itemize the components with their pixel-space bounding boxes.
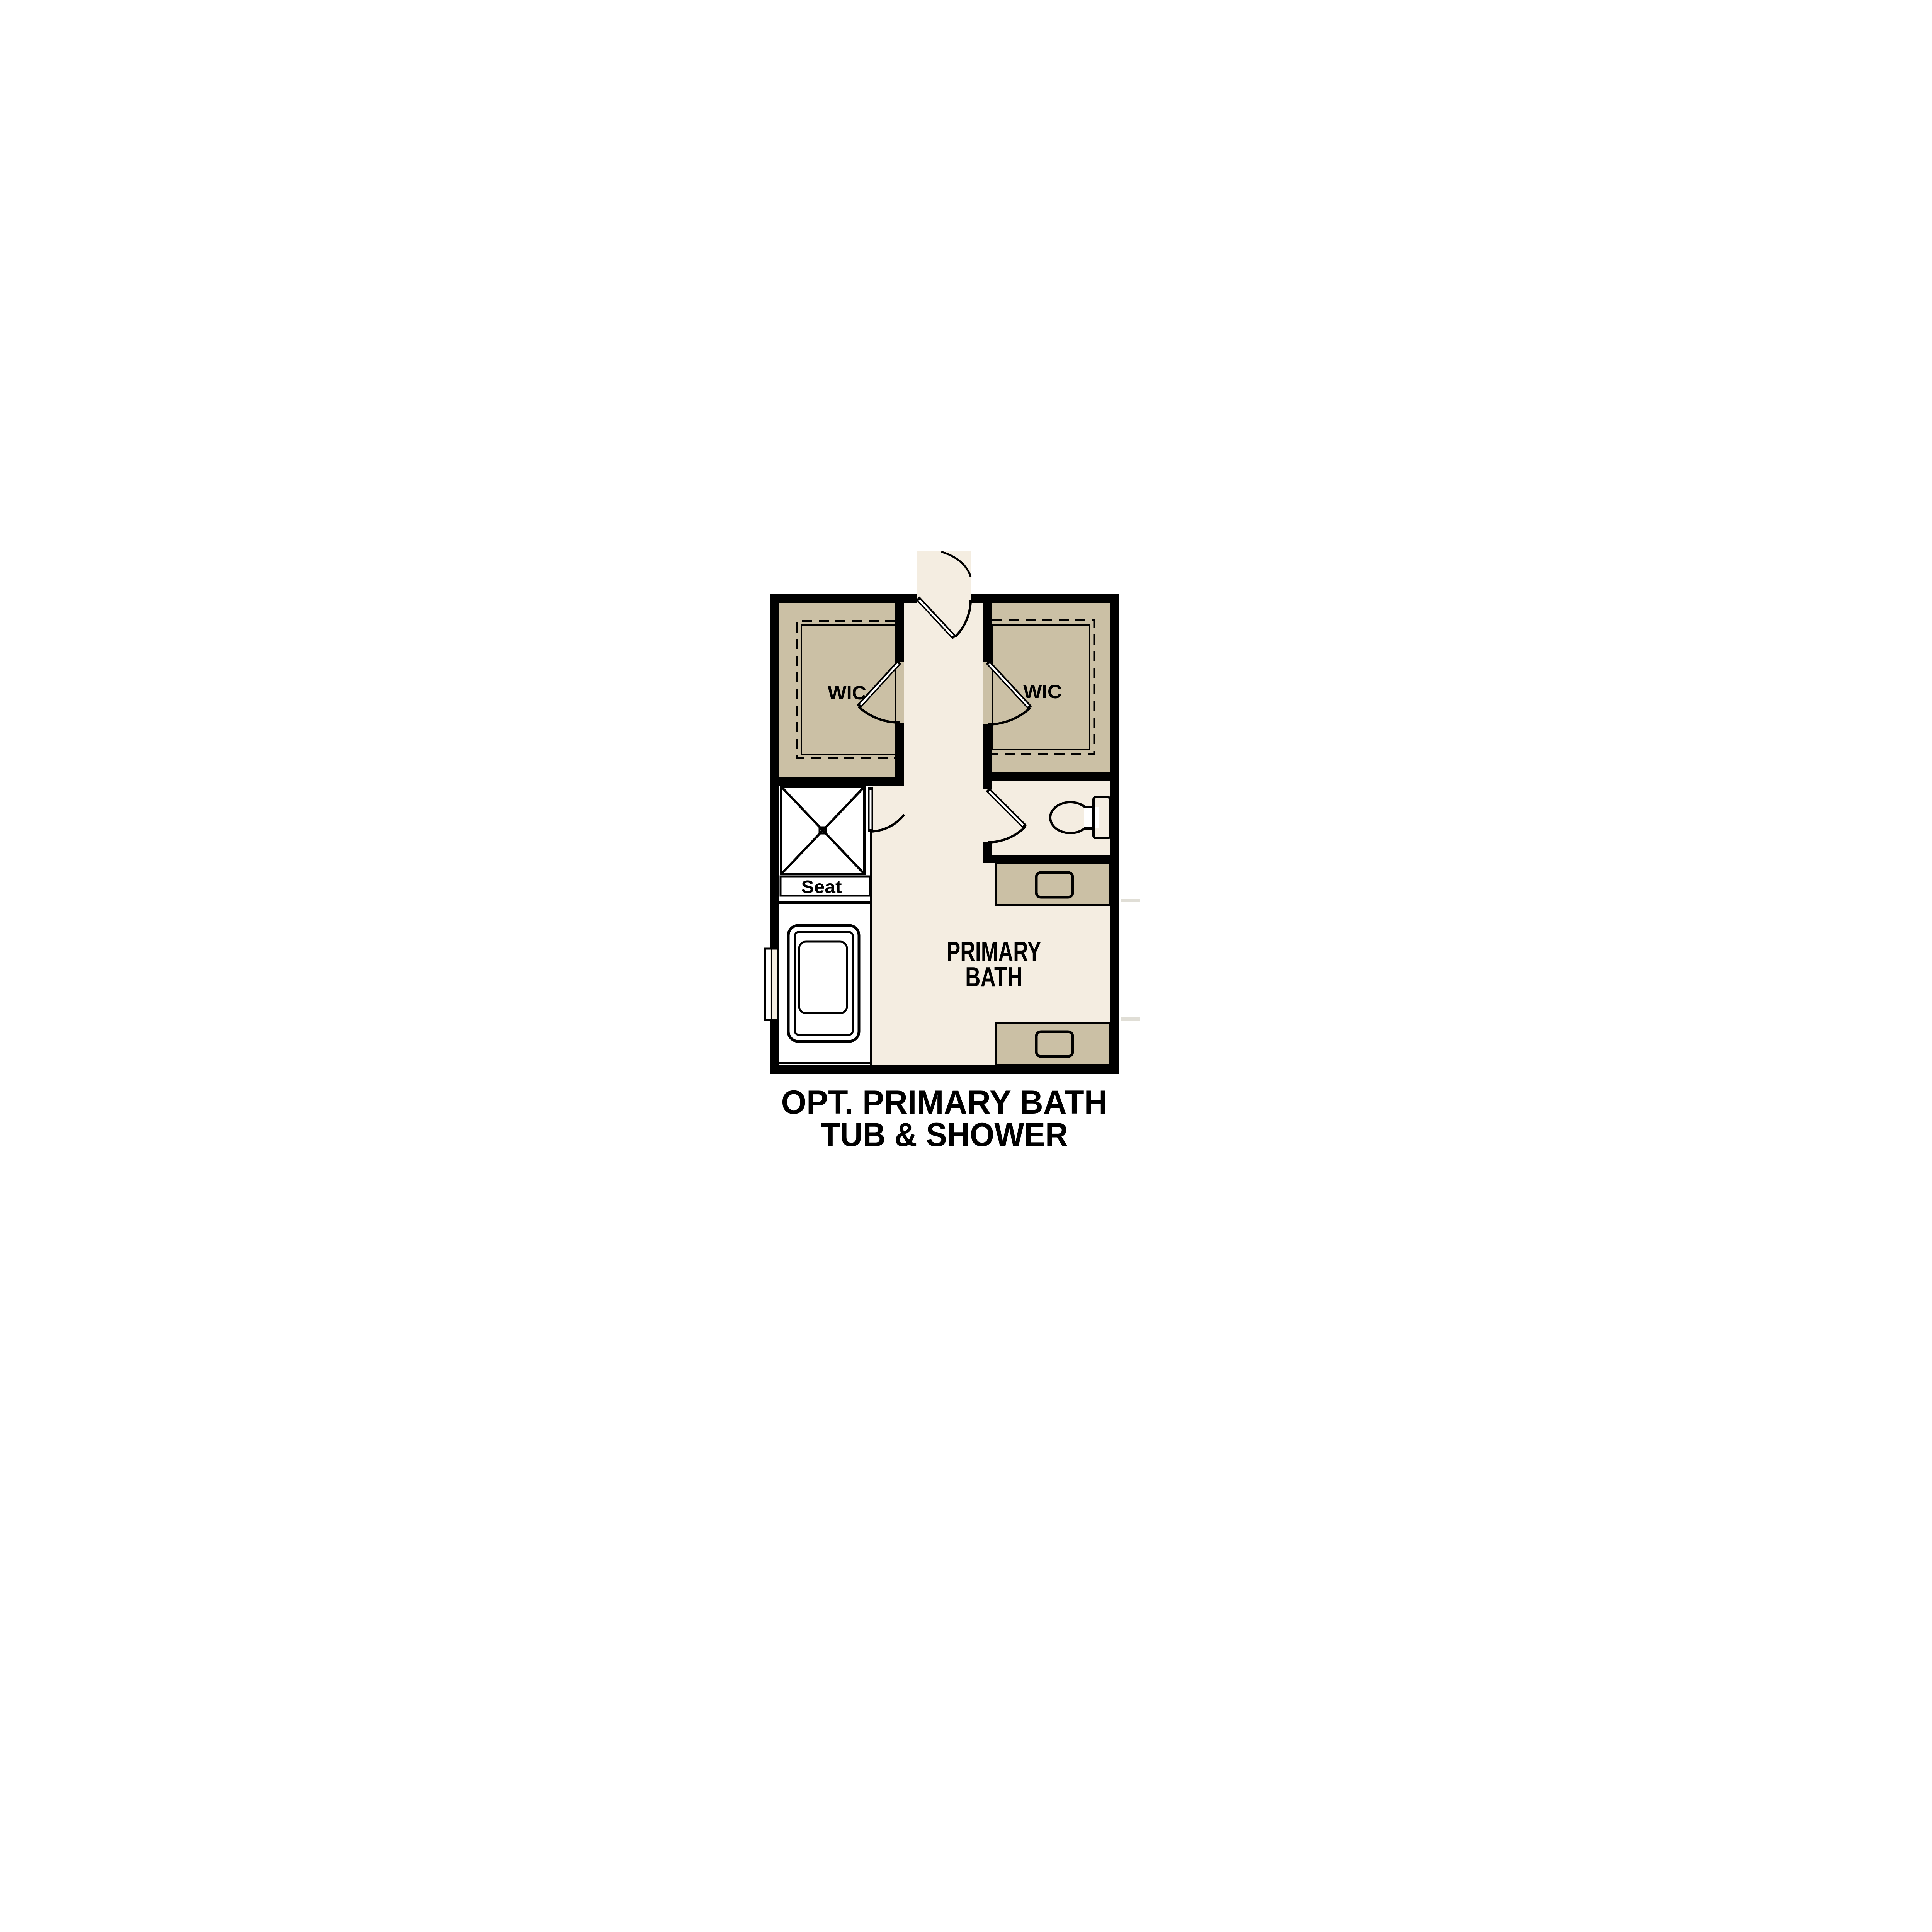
wic-left-partition-upper	[895, 603, 904, 662]
wic-left-label: WIC	[828, 682, 866, 704]
wic-left-partition-lower	[895, 723, 904, 777]
tub-room-partition	[870, 831, 872, 1065]
seat-label: Seat	[801, 877, 842, 897]
entry-floor	[917, 551, 971, 605]
wic-right-bottom-wall	[983, 772, 1119, 781]
ghost-mark-2	[1121, 1017, 1140, 1021]
primary-bath-label-line2: BATH	[965, 962, 1022, 993]
print-ghost-marks	[1121, 899, 1140, 1021]
tub-room-bottom-line	[779, 1062, 872, 1064]
vanity-bottom	[996, 1023, 1110, 1065]
toilet-partition-lower-stub	[983, 842, 992, 855]
top-wall-right	[971, 594, 1119, 603]
top-wall-left	[770, 594, 917, 603]
wic-right-partition-lower	[983, 724, 992, 772]
left-wall-upper	[770, 594, 779, 949]
toilet-neck	[1084, 807, 1099, 828]
page: Seat	[0, 0, 1932, 1932]
ghost-mark-1	[1121, 899, 1140, 902]
caption-line1: OPT. PRIMARY BATH	[781, 1084, 1108, 1121]
wic-right-label: WIC	[1023, 681, 1062, 702]
wic-right-partition-upper	[983, 603, 992, 662]
vanity-top	[996, 863, 1110, 905]
caption-line2: TUB & SHOWER	[821, 1116, 1068, 1153]
tub-room-top-line	[779, 901, 872, 904]
right-wall	[1110, 594, 1119, 1074]
toilet-partition-upper-stub	[983, 781, 992, 789]
floor-plan-drawing: Seat	[753, 545, 1140, 1163]
wic-left-bottom-wall	[770, 777, 904, 786]
bottom-wall	[770, 1065, 1119, 1074]
plan-caption: OPT. PRIMARY BATH TUB & SHOWER	[781, 1084, 1108, 1153]
toilet-room-bottom-wall	[983, 855, 1119, 863]
